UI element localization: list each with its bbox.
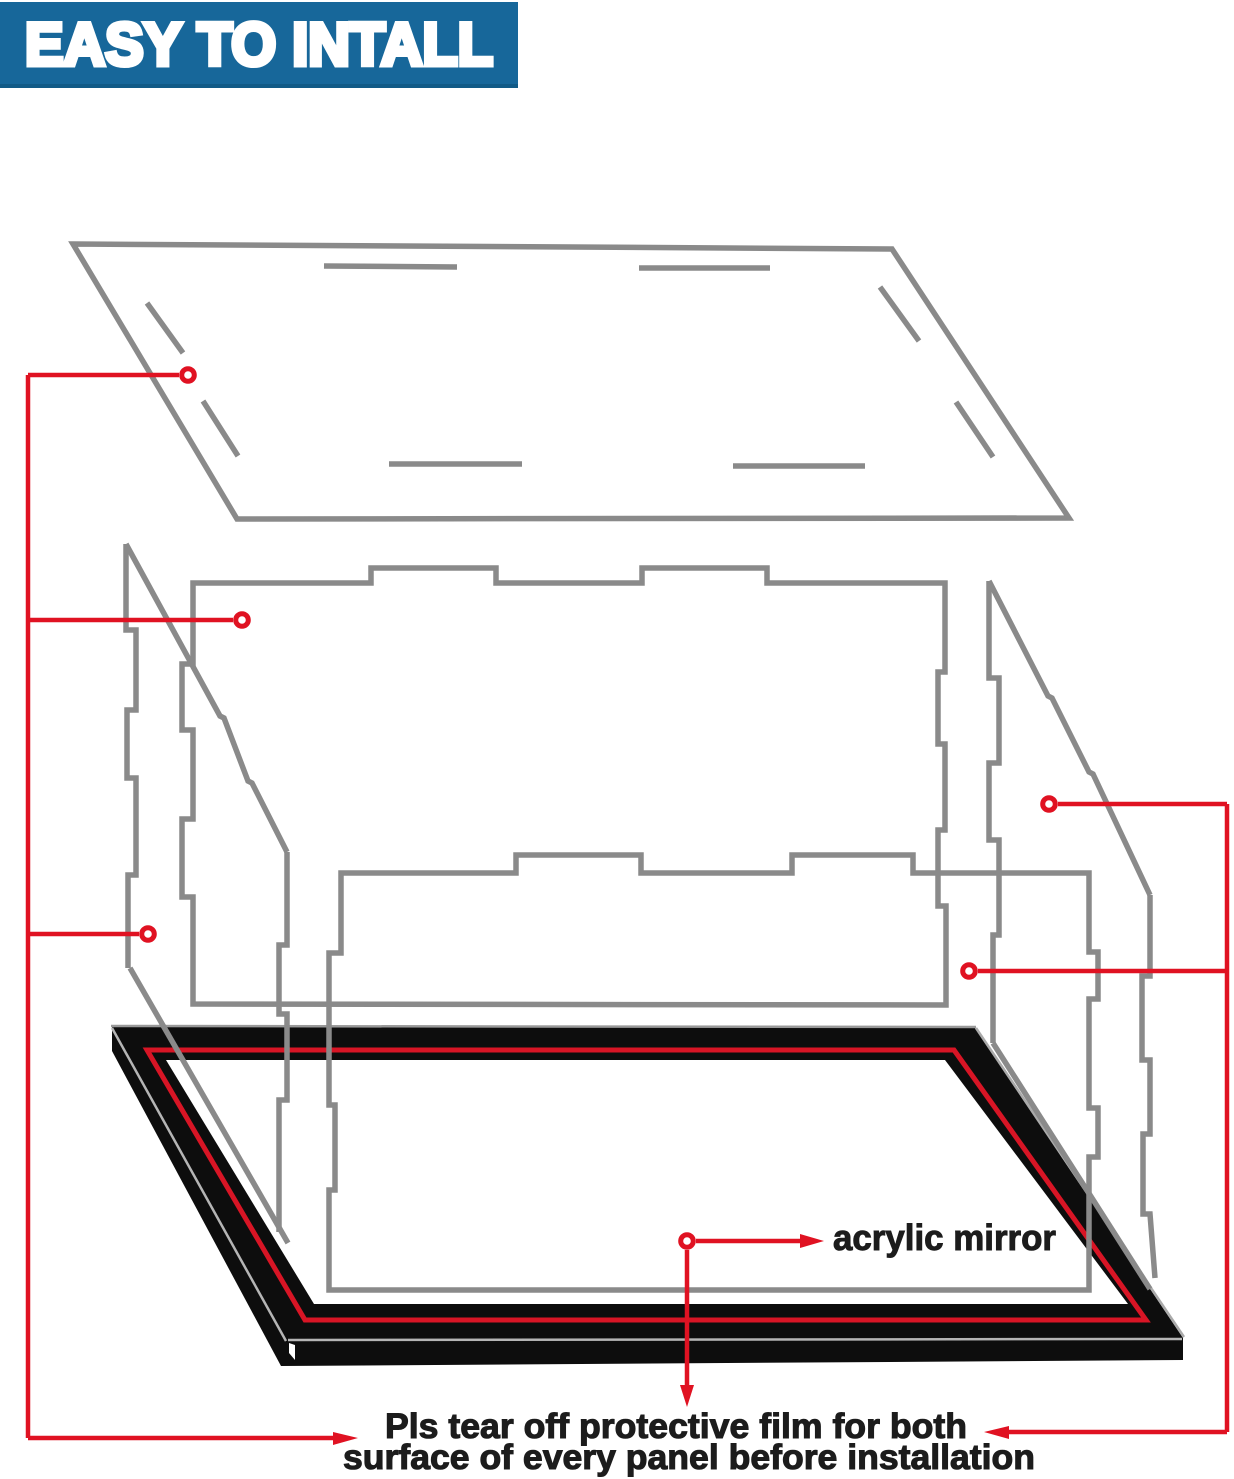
svg-text:acrylic mirror: acrylic mirror bbox=[833, 1217, 1056, 1258]
svg-text:EASY TO INTALL: EASY TO INTALL bbox=[25, 11, 493, 78]
svg-text:surface of every panel before: surface of every panel before installati… bbox=[343, 1438, 1035, 1477]
